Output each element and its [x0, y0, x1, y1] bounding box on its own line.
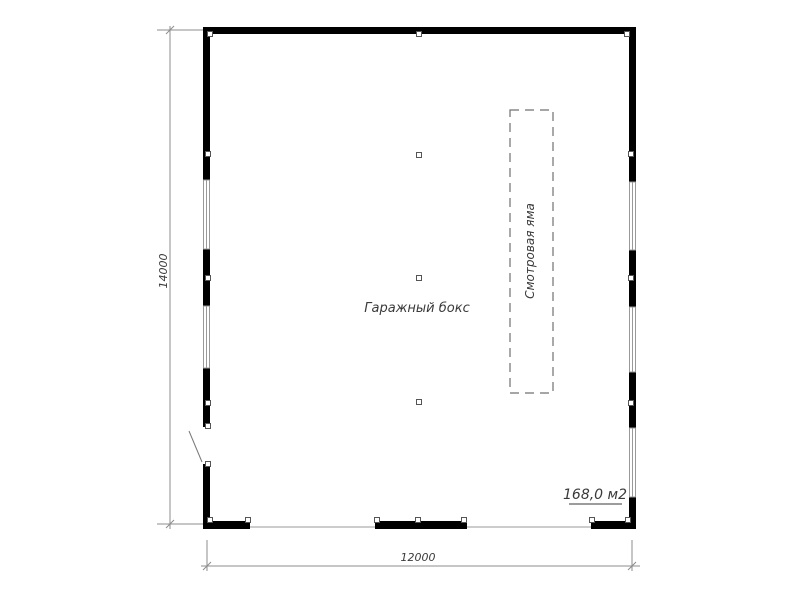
column-marker [208, 518, 213, 523]
column-markers [206, 32, 634, 523]
entrance-door [189, 431, 202, 462]
wall-left-segment-3 [203, 368, 210, 427]
column-marker [375, 518, 380, 523]
inspection-pit-label: Смотровая яма [523, 203, 537, 299]
floor-plan-canvas: Гаражный бокс Смотровая яма 168,0 м2 140… [0, 0, 800, 600]
column-marker [629, 152, 634, 157]
column-marker [246, 518, 251, 523]
column-marker [629, 401, 634, 406]
column-marker [629, 276, 634, 281]
interior-column-marker [417, 276, 422, 281]
dimension-value-vertical: 14000 [157, 254, 170, 289]
column-marker [206, 152, 211, 157]
column-marker [417, 32, 422, 37]
column-marker [626, 518, 631, 523]
dimension-value-horizontal: 12000 [401, 551, 436, 564]
area-value-label: 168,0 м2 [563, 487, 627, 503]
wall-right-segment-1 [629, 27, 636, 182]
windows [204, 180, 636, 497]
wall-left-segment-1 [203, 27, 210, 180]
door-swing-line [189, 431, 202, 462]
column-marker [206, 401, 211, 406]
room-label: Гаражный бокс [364, 301, 469, 316]
door-jamb-marker [206, 462, 211, 467]
column-marker [462, 518, 467, 523]
floor-plan-drawing: Гаражный бокс Смотровая яма 168,0 м2 140… [0, 0, 800, 600]
column-marker [590, 518, 595, 523]
wall-right-segment-4 [629, 497, 636, 529]
interior-column-marker [417, 153, 422, 158]
column-marker [416, 518, 421, 523]
interior-column-marker [417, 400, 422, 405]
door-jamb-marker [206, 424, 211, 429]
column-marker [208, 32, 213, 37]
column-marker [206, 276, 211, 281]
column-marker [625, 32, 630, 37]
